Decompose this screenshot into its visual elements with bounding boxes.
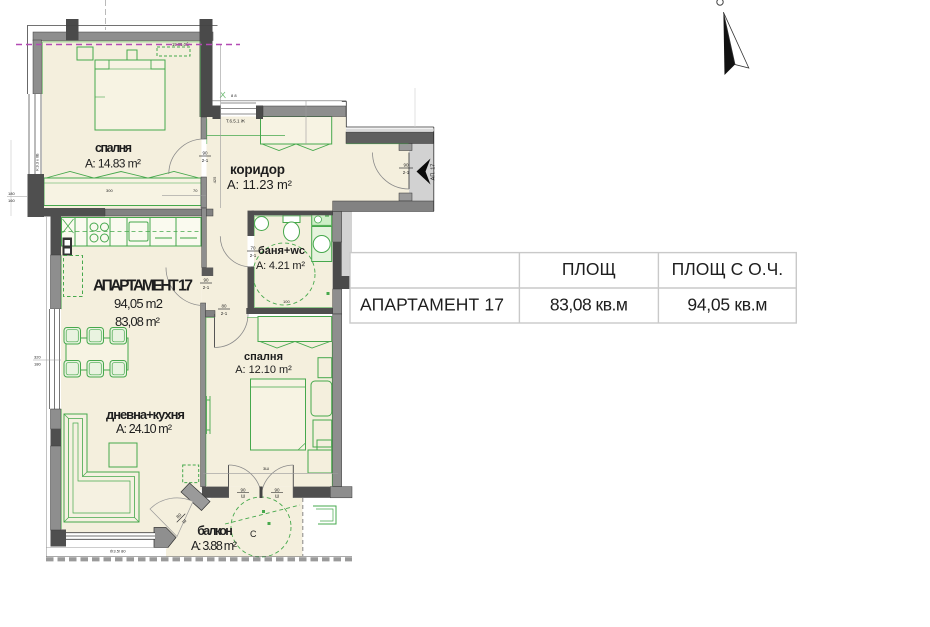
svg-text:баня+wc: баня+wc — [258, 245, 305, 257]
svg-text:90: 90 — [203, 278, 209, 283]
svg-text:А: 12.10 m²: А: 12.10 m² — [235, 364, 292, 376]
svg-text:3Ш: 3Ш — [263, 466, 269, 471]
svg-text:А: 4.21 m²: А: 4.21 m² — [256, 260, 305, 272]
svg-text:180: 180 — [34, 362, 41, 367]
svg-text:70: 70 — [193, 188, 198, 193]
svg-text:80: 80 — [221, 304, 227, 309]
svg-text:ПЛОЩ: ПЛОЩ — [562, 259, 616, 279]
svg-text:АП. 17: АП. 17 — [431, 164, 437, 181]
svg-text:100: 100 — [283, 299, 290, 304]
svg-text:ПЛОЩ С О.Ч.: ПЛОЩ С О.Ч. — [672, 259, 783, 279]
svg-text:90: 90 — [240, 488, 246, 493]
svg-text:320: 320 — [34, 355, 41, 360]
svg-text:300: 300 — [106, 188, 113, 193]
svg-text:2-1: 2-1 — [203, 285, 210, 290]
svg-text:160: 160 — [8, 198, 15, 203]
svg-text:спалня: спалня — [244, 351, 283, 363]
svg-text:К.9.3 х 0В: К.9.3 х 0В — [36, 153, 40, 171]
svg-text:94,05 кв.м: 94,05 кв.м — [687, 295, 767, 315]
svg-text:8 8: 8 8 — [231, 93, 237, 98]
svg-text:83,08 кв.м: 83,08 кв.м — [550, 295, 628, 315]
svg-text:83,08 m²: 83,08 m² — [115, 314, 161, 329]
svg-text:А: 11.23 m²: А: 11.23 m² — [227, 177, 293, 192]
svg-text:балкон: балкон — [197, 524, 233, 538]
svg-text:АПАРТАМЕНТ 17: АПАРТАМЕНТ 17 — [360, 295, 504, 315]
svg-text:2-1: 2-1 — [403, 170, 410, 175]
svg-text:А: 14.83 m²: А: 14.83 m² — [85, 157, 141, 171]
svg-text:2-1: 2-1 — [250, 253, 257, 258]
svg-text:90: 90 — [274, 488, 280, 493]
svg-text:2-1: 2-1 — [221, 311, 228, 316]
svg-text:Ш: Ш — [241, 494, 245, 499]
svg-text:90: 90 — [202, 151, 208, 156]
svg-text:б!3.5! 80: б!3.5! 80 — [110, 549, 126, 554]
svg-text:С: С — [250, 529, 257, 539]
svg-text:коридор: коридор — [230, 162, 285, 177]
svg-text:94,05 m2: 94,05 m2 — [114, 296, 163, 311]
svg-text:спалня: спалня — [95, 141, 132, 155]
svg-text:70: 70 — [250, 246, 256, 251]
svg-text:180: 180 — [8, 191, 15, 196]
svg-text:Т.6.5.1 Ж: Т.6.5.1 Ж — [226, 119, 246, 124]
svg-text:2-1: 2-1 — [202, 158, 209, 163]
svg-text:АПАРТАМЕНТ 17: АПАРТАМЕНТ 17 — [93, 278, 193, 295]
svg-text:дневна+кухня: дневна+кухня — [106, 407, 185, 422]
svg-text:А: 3.88 m²: А: 3.88 m² — [191, 539, 237, 553]
svg-text:А: 24.10 m²: А: 24.10 m² — [116, 422, 172, 436]
svg-text:Ш: Ш — [275, 494, 279, 499]
svg-text:90: 90 — [403, 163, 409, 168]
svg-text:425: 425 — [212, 176, 217, 183]
